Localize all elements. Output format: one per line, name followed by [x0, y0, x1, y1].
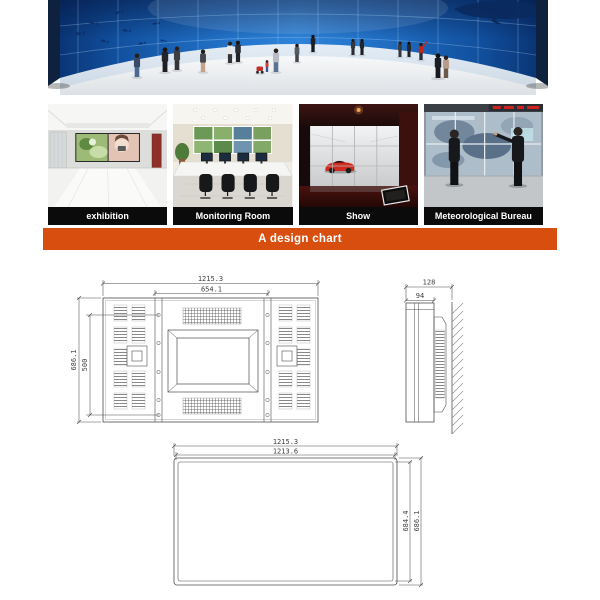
hero-scene	[48, 0, 548, 95]
handle-boxes	[127, 346, 297, 366]
gallery-item-monitoring-room[interactable]: Monitoring Room	[173, 104, 292, 225]
central-recess	[168, 330, 258, 392]
thumbnail-caption: Meteorological Bureau	[424, 207, 543, 225]
thumbnail-caption: exhibition	[48, 207, 167, 225]
technical-drawing: 1215.3 654.1 686.1 500	[40, 258, 560, 600]
console-desk	[173, 162, 292, 176]
front-view: 1215.3 1213.6 684.4 686.1	[172, 438, 423, 587]
red-door	[152, 134, 161, 168]
top-grille	[183, 308, 241, 324]
dim-back-width-inner: 654.1	[201, 286, 222, 294]
meteorological-scene	[424, 104, 543, 207]
dim-side-depth-body: 94	[416, 292, 424, 300]
dim-front-width-inner: 1213.6	[273, 448, 298, 456]
section-banner: A design chart	[43, 228, 557, 250]
wall-hatching	[452, 302, 463, 434]
front-view-dimensions	[172, 443, 423, 587]
side-view: 128 94	[404, 279, 463, 435]
dim-back-width-outer: 1215.3	[198, 275, 223, 283]
gallery-item-show[interactable]: Show	[299, 104, 418, 225]
exhibition-video-wall	[75, 133, 140, 162]
product-page: exhibition	[0, 0, 600, 600]
monitoring-room-scene	[173, 104, 292, 207]
back-view: 1215.3 654.1 686.1 500	[70, 275, 320, 424]
thumbnail-caption: Monitoring Room	[173, 207, 292, 225]
red-led-sign	[488, 104, 543, 111]
dim-side-depth-outer: 128	[423, 279, 436, 287]
design-chart-section: 1215.3 654.1 686.1 500	[40, 258, 560, 600]
thumbnail-caption: Show	[299, 207, 418, 225]
show-video-wall	[310, 126, 399, 186]
monitoring-video-wall	[193, 126, 272, 154]
dim-front-height-inner: 684.4	[402, 510, 410, 531]
application-gallery: exhibition	[48, 104, 543, 225]
gallery-item-meteorological-bureau[interactable]: Meteorological Bureau	[424, 104, 543, 225]
hero-video-wall-photo	[48, 0, 548, 95]
side-view-dimensions	[404, 284, 454, 303]
show-scene	[299, 104, 418, 207]
bottom-grille	[183, 398, 241, 414]
dim-back-height-outer: 686.1	[70, 349, 78, 370]
dim-front-width-outer: 1215.3	[273, 438, 298, 446]
thumbnail-photo-monitoring-room	[173, 104, 292, 207]
thumbnail-photo-meteorological-bureau	[424, 104, 543, 207]
exhibition-scene	[48, 104, 167, 207]
dim-front-height-outer: 686.1	[413, 510, 421, 531]
gallery-item-exhibition[interactable]: exhibition	[48, 104, 167, 225]
thumbnail-photo-exhibition	[48, 104, 167, 207]
dim-back-height-inner: 500	[81, 359, 89, 372]
thumbnail-photo-show	[299, 104, 418, 207]
section-banner-label: A design chart	[258, 233, 342, 245]
